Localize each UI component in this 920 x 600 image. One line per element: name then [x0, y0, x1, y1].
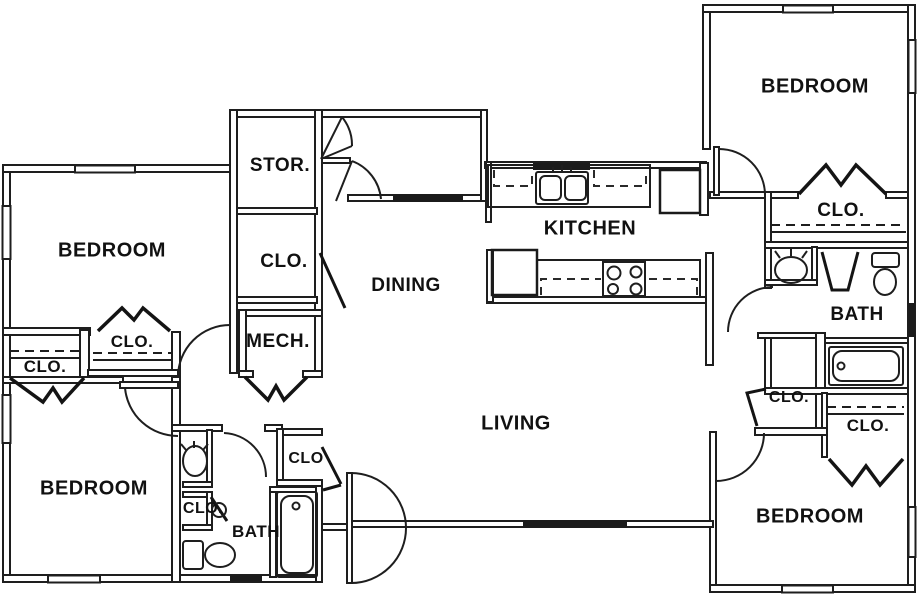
window-left-upper [3, 206, 11, 259]
bifold-clo-top-right [799, 165, 886, 194]
room-label-clo-right-shelf: CLO. [847, 416, 890, 436]
bathtub-right-icon [829, 347, 903, 385]
toilet-right-icon [872, 253, 899, 295]
room-label-clo-right-hall: CLO. [769, 389, 809, 407]
room-label-clo-entry: CLO [288, 450, 323, 468]
room-label-kitchen: KITCHEN [544, 218, 636, 241]
door-arc-storage [321, 117, 352, 159]
window-sill-bath-left [230, 576, 262, 582]
floor-plan: BEDROOM CLO. CLO. BEDROOM CLO. BATH CLO … [0, 0, 920, 600]
window-living [523, 520, 627, 528]
pantry-cabinet-icon [660, 170, 700, 213]
room-label-bath-right: BATH [830, 304, 883, 326]
door-arc-bath-left [224, 433, 266, 477]
room-label-bedroom-top-right: BEDROOM [761, 76, 869, 99]
room-label-mechanical: MECH. [246, 331, 310, 353]
room-label-clo-left-outer: CLO. [24, 357, 67, 377]
kitchen-sink-icon [536, 165, 588, 204]
window-right-upper [909, 40, 916, 93]
window-top-left [75, 166, 135, 173]
door-arc-bedroom-bottom-right [716, 433, 764, 481]
cabinet-dashed [541, 279, 601, 295]
room-label-dining: DINING [371, 275, 441, 297]
bathtub-left-icon [277, 492, 317, 577]
door-arc-bedroom-top-right [719, 149, 765, 195]
cabinet-dashed [649, 279, 697, 295]
room-label-clo-linen: CLO. [183, 500, 223, 518]
door-clo-entry [322, 447, 341, 490]
room-label-clo-top-right: CLO. [817, 200, 864, 222]
sink-right-icon [775, 249, 807, 283]
door-arc-hall-left [178, 325, 230, 377]
double-door-mech [245, 377, 307, 400]
window-right-lower [909, 507, 916, 557]
door-arc-bedroom-bottom-left [125, 388, 178, 436]
window-top-right [783, 6, 833, 13]
window-left-lower [3, 395, 11, 443]
room-label-clo-column: CLO. [260, 251, 307, 273]
window-bottom-left [48, 576, 100, 583]
room-label-bedroom-bottom-right: BEDROOM [756, 506, 864, 529]
upper-cabinet-dashed [594, 170, 646, 186]
room-label-bedroom-top-left: BEDROOM [58, 240, 166, 263]
room-label-bedroom-bottom-left: BEDROOM [40, 478, 148, 501]
toilet-left-icon [183, 541, 235, 569]
door-bath-right [822, 252, 858, 290]
bifold-clo-right-shelf [829, 459, 903, 485]
refrigerator-icon [492, 250, 537, 295]
room-label-storage: STOR. [250, 155, 310, 177]
room-label-bath-bottom-left: BATH [232, 522, 280, 542]
room-label-clo-left-inner: CLO. [111, 332, 154, 352]
upper-cabinet-dashed [494, 170, 532, 186]
stove-icon [603, 262, 645, 296]
window-bottom-right [782, 586, 833, 593]
bifold-clo-left-inner [98, 308, 170, 331]
door-clo-column [320, 253, 345, 308]
sink-left-icon [181, 441, 208, 476]
room-label-living: LIVING [481, 413, 551, 436]
window-right-bath [909, 303, 916, 337]
door-arc-bath-right [728, 287, 773, 332]
door-clo-right-hall [747, 389, 766, 426]
window-vestibule [393, 195, 463, 203]
